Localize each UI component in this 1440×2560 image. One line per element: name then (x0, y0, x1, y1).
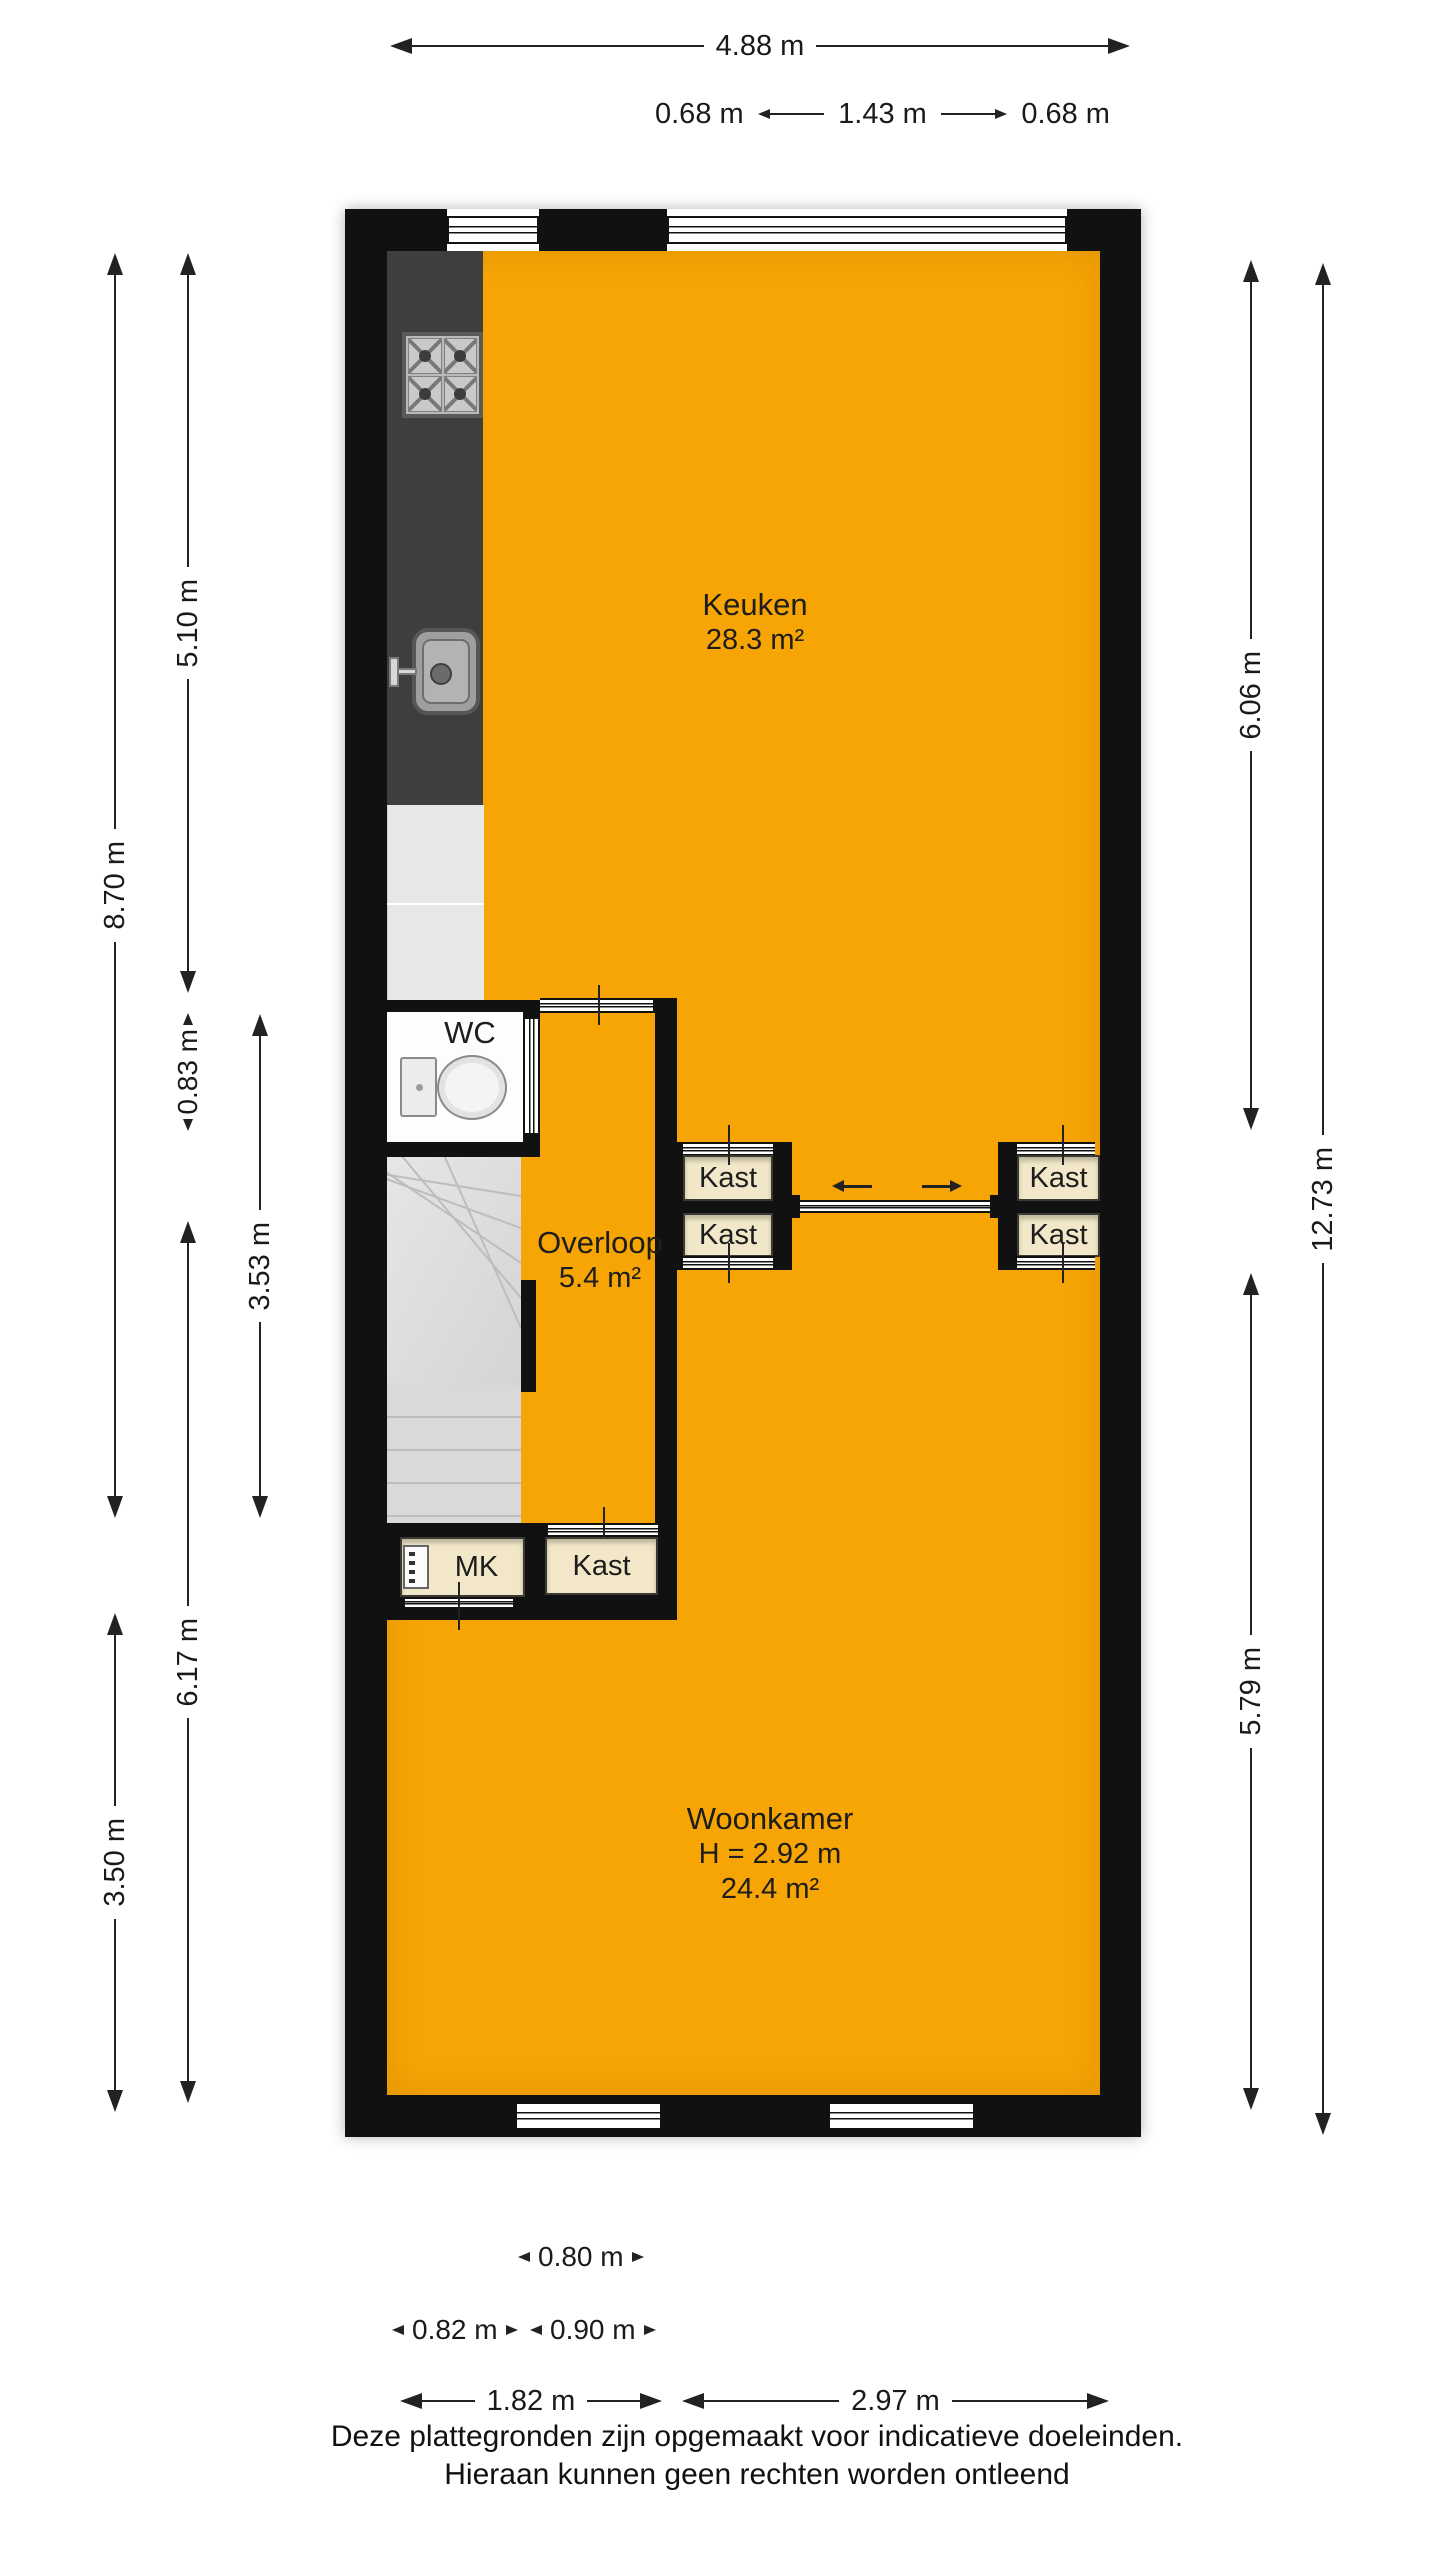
dimension-left-870: 8.70 m (95, 253, 135, 1518)
wc-door (523, 1019, 540, 1133)
room-ceiling-height: H = 2.92 m (650, 1837, 890, 1872)
wall (792, 1195, 800, 1218)
dimension-top-total: 4.88 m (390, 28, 1130, 64)
room-name: WC (415, 1015, 525, 1051)
disclaimer-line-2: Hieraan kunnen geen rechten worden ontle… (74, 2456, 1440, 2494)
closet-kast-3: Kast (1017, 1155, 1100, 1201)
dimension-label: 0.68 m (655, 98, 744, 131)
dimension-left-617: 6.17 m (168, 1221, 208, 2103)
room-name: Overloop (505, 1225, 695, 1261)
room-area: 5.4 m² (505, 1261, 695, 1296)
dimension-label: 3.50 m (99, 1806, 132, 1919)
dimension-label: 1.82 m (475, 2385, 588, 2418)
room-name: Kast (572, 1550, 630, 1583)
dimension-left-350: 3.50 m (95, 1613, 135, 2112)
wall (523, 1000, 540, 1019)
dimension-tick (1062, 1125, 1064, 1165)
closet-door (1017, 1256, 1095, 1270)
wall (653, 998, 677, 1013)
room-label-overloop: Overloop 5.4 m² (505, 1225, 695, 1296)
closet-kast-5: Kast (545, 1537, 658, 1595)
room-name: Kast (699, 1162, 757, 1195)
floor-plan: WC Kast Kast (345, 209, 1141, 2137)
dimension-label: 0.80 m (530, 2241, 632, 2273)
dimension-bottom-082: 0.82 m (392, 2312, 532, 2348)
window (828, 2102, 975, 2130)
dimension-label: 4.88 m (704, 30, 817, 63)
meter-cabinet-icon (403, 1545, 429, 1589)
sink-drain (430, 663, 452, 685)
arrow-right-icon (941, 109, 1007, 119)
dimension-right-606: 6.06 m (1231, 260, 1271, 1130)
room-label-wc: WC (415, 1015, 525, 1051)
window (515, 2102, 662, 2130)
floor-plan-page: WC Kast Kast (0, 0, 1440, 2560)
appliance-divider (387, 903, 483, 905)
room-label-keuken: Keuken 28.3 m² (635, 587, 875, 658)
wall (521, 1280, 536, 1392)
wall (677, 1200, 792, 1213)
wall (345, 2095, 1141, 2137)
sliding-door (800, 1200, 990, 1213)
dimension-label: 6.17 m (172, 1606, 205, 1719)
sink-icon (412, 628, 480, 715)
room-name: Kast (1029, 1162, 1087, 1195)
footer-disclaimer: Deze plattegronden zijn opgemaakt voor i… (74, 2418, 1440, 2494)
wall (539, 209, 667, 251)
doorway-overloop (540, 998, 653, 1013)
arrow-left-icon (758, 109, 824, 119)
room-name: Kast (1029, 1219, 1087, 1252)
wall (387, 1142, 537, 1157)
dimension-bottom-080: 0.80 m (518, 2239, 658, 2275)
sliding-door-arrow-left-icon (842, 1185, 872, 1188)
dimension-label: 1.43 m (838, 98, 927, 131)
dimension-label: 0.68 m (1021, 98, 1110, 131)
dimension-label: 3.53 m (244, 1210, 277, 1323)
window (447, 216, 539, 244)
dimension-bottom-297: 2.97 m (682, 2383, 1109, 2419)
dimension-label: 12.73 m (1307, 1135, 1340, 1264)
burner-icon (444, 376, 478, 412)
dimension-tick (458, 1582, 460, 1630)
toilet-bowl-icon (437, 1055, 507, 1120)
dimension-label: 0.83 m (172, 1025, 204, 1119)
closet-kast-4: Kast (1017, 1213, 1100, 1257)
wall (523, 1133, 540, 1157)
wall (345, 209, 387, 2137)
wall (990, 1195, 998, 1218)
dimension-label: 8.70 m (99, 829, 132, 942)
dimension-label: 0.82 m (404, 2314, 506, 2346)
dimension-tick (598, 985, 600, 1025)
dimension-bottom-182: 1.82 m (400, 2383, 662, 2419)
dimension-right-579: 5.79 m (1231, 1273, 1271, 2110)
dimension-label: 2.97 m (839, 2385, 952, 2418)
dimension-left-353: 3.53 m (240, 1014, 280, 1518)
dimension-bottom-090: 0.90 m (530, 2312, 670, 2348)
room-name: Woonkamer (650, 1801, 890, 1837)
dimension-tick (728, 1125, 730, 1165)
dimension-left-083: 0.83 m (168, 1013, 208, 1148)
dimension-label: 0.90 m (542, 2314, 644, 2346)
burner-icon (408, 338, 442, 374)
dimension-left-510: 5.10 m (168, 253, 208, 993)
stove-icon (402, 332, 483, 418)
toilet-cistern-icon (400, 1057, 437, 1117)
dimension-top-subrow: 0.68 m 1.43 m 0.68 m (655, 96, 1110, 132)
dimension-label: 5.79 m (1235, 1635, 1268, 1748)
room-area: 28.3 m² (635, 623, 875, 658)
wall (1100, 209, 1141, 2137)
dimension-label: 5.10 m (172, 567, 205, 680)
room-name: Keuken (635, 587, 875, 623)
wall (998, 1200, 1100, 1213)
stairs-icon (387, 1157, 521, 1523)
disclaimer-line-1: Deze plattegronden zijn opgemaakt voor i… (74, 2418, 1440, 2456)
dimension-tick (1062, 1243, 1064, 1283)
room-name: MK (455, 1551, 499, 1584)
room-area: 24.4 m² (650, 1872, 890, 1907)
wall (387, 1523, 525, 1537)
dimension-label: 6.06 m (1235, 639, 1268, 752)
room-label-woonkamer: Woonkamer H = 2.92 m 24.4 m² (650, 1801, 890, 1907)
dimension-tick (728, 1243, 730, 1283)
sliding-door-arrow-right-icon (922, 1185, 952, 1188)
faucet-spout (397, 668, 417, 675)
dimension-right-1273: 12.73 m (1303, 263, 1343, 2135)
window (667, 216, 1067, 244)
burner-icon (408, 376, 442, 412)
wall (655, 1012, 677, 1620)
closet-door (1017, 1142, 1095, 1156)
burner-icon (444, 338, 478, 374)
